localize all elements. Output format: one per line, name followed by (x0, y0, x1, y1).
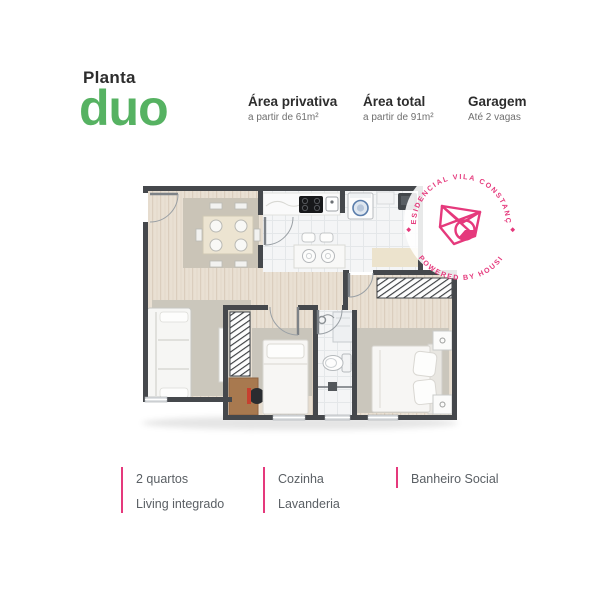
pillow (267, 344, 304, 358)
cooktop (299, 196, 323, 213)
pillow (413, 351, 438, 378)
floor-plan-card: Planta duo Área privativa a partir de 61… (0, 0, 600, 600)
nightstand (433, 395, 452, 414)
wardrobe (377, 278, 452, 298)
wall (258, 245, 263, 268)
sofa-pillow (160, 312, 188, 322)
feature-accent-bar (121, 467, 123, 513)
sofa-pillow (160, 388, 188, 398)
nightstand (433, 331, 452, 350)
wall (223, 310, 228, 420)
dining-chair (235, 203, 247, 209)
wall (143, 186, 423, 191)
dining-area (183, 198, 260, 268)
wall (143, 186, 148, 193)
toilet (323, 354, 351, 372)
feature-kitchen-laundry: Cozinha Lavanderia (263, 467, 340, 517)
feature-accent-bar (396, 467, 398, 488)
island-basin (322, 250, 335, 263)
dining-chair (254, 229, 260, 241)
feature-line: Lavanderia (278, 492, 340, 517)
kitchen-island (294, 245, 345, 268)
wall (298, 305, 318, 310)
dining-chair (210, 203, 222, 209)
hall-floor (263, 268, 348, 310)
faucet (330, 200, 333, 203)
dining-chair (210, 261, 222, 267)
stool (302, 233, 315, 242)
shower-shelf (333, 312, 353, 342)
feature-bedrooms: 2 quartos Living integrado (121, 467, 224, 517)
sofa (147, 308, 191, 400)
partition-handle (328, 382, 337, 391)
wall (342, 305, 348, 310)
desk-chair-accent (247, 388, 251, 404)
wall (258, 186, 263, 215)
wall (143, 222, 148, 402)
kitchen-sink (326, 197, 338, 211)
wardrobe (230, 312, 250, 376)
dining-chair-seat (235, 220, 247, 232)
feature-accent-bar (263, 467, 265, 513)
dining-chair-seat (210, 220, 222, 232)
feature-line: Cozinha (278, 467, 340, 492)
dining-chair-seat (235, 239, 247, 251)
feature-bathroom: Banheiro Social (396, 467, 499, 492)
laundry-mat (372, 248, 418, 267)
wall (343, 270, 348, 310)
double-bed (372, 344, 442, 414)
dining-chair-seat (210, 239, 222, 251)
single-bed (263, 340, 308, 414)
island-basin (303, 250, 316, 263)
wall (352, 310, 357, 415)
wall (452, 270, 457, 420)
wall (223, 305, 268, 310)
wall (340, 186, 345, 213)
feature-line: 2 quartos (136, 467, 224, 492)
laundry-shelf (377, 192, 394, 204)
feature-line: Living integrado (136, 492, 224, 517)
washing-machine (348, 193, 373, 219)
feature-line: Banheiro Social (411, 467, 499, 492)
dining-chair (235, 261, 247, 267)
stool (320, 233, 333, 242)
dining-chair (196, 229, 202, 241)
